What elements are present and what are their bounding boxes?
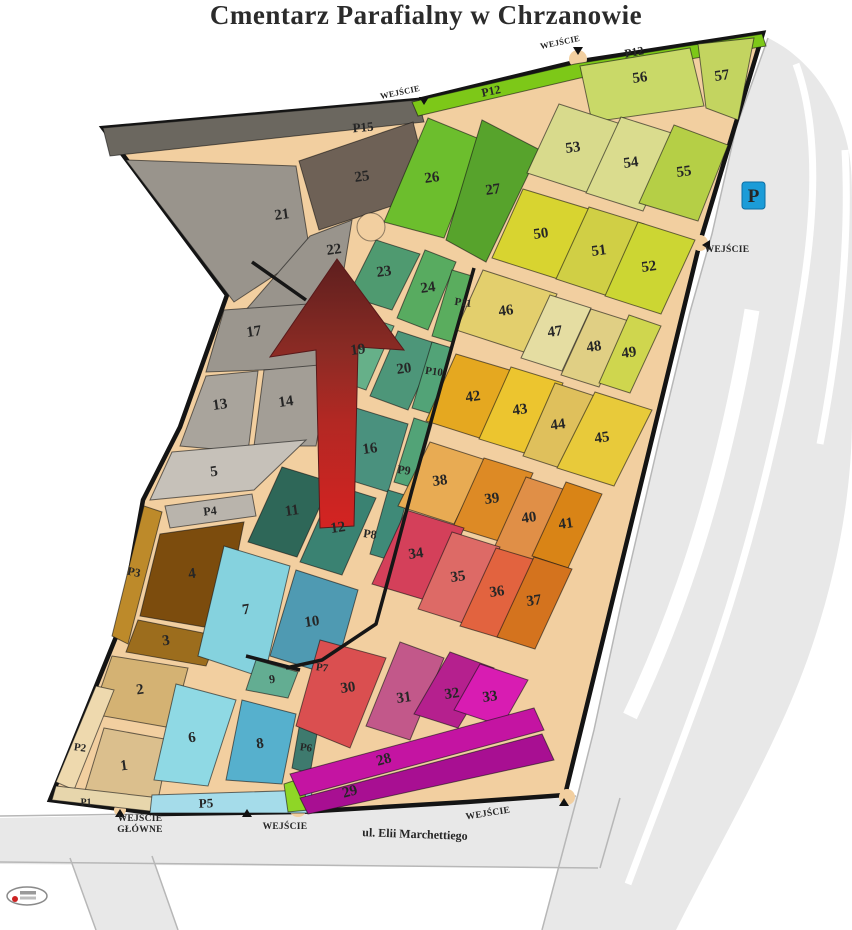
path-label-P5: P5 (199, 795, 214, 811)
section-label-47: 47 (546, 323, 564, 341)
section-label-40: 40 (520, 509, 537, 527)
section-label-38: 38 (431, 472, 448, 490)
road-surface (70, 856, 178, 930)
path-label-P10: P10 (424, 365, 444, 379)
section-label-54: 54 (622, 154, 640, 172)
logo-bar (20, 897, 36, 900)
entrance-label: WEJŚCIEGŁÓWNE (117, 812, 163, 835)
section-label-25: 25 (353, 168, 370, 186)
section-label-36: 36 (488, 583, 506, 601)
section-label-48: 48 (585, 338, 602, 356)
cemetery-map: 2521221713145432171096811121619202324262… (0, 0, 852, 930)
section-label-31: 31 (395, 689, 412, 707)
section-label-32: 32 (443, 685, 460, 703)
section-label-53: 53 (564, 139, 581, 157)
section-label-26: 26 (423, 169, 441, 187)
logo-icon (7, 887, 47, 905)
path-label-P3: P3 (126, 564, 142, 580)
path-label-P8: P8 (362, 526, 377, 542)
path-label-P9: P9 (396, 462, 411, 478)
path-label-P4: P4 (203, 503, 218, 518)
entrance-label: WEJŚCIE (263, 820, 308, 832)
parking-letter: P (748, 186, 760, 207)
path-label-P2: P2 (73, 741, 87, 755)
section-label-41: 41 (557, 515, 574, 533)
section-label-21: 21 (273, 206, 290, 224)
section-label-35: 35 (449, 568, 466, 586)
section-label-14: 14 (277, 393, 295, 411)
section-label-20: 20 (395, 360, 412, 378)
section-label-12: 12 (329, 519, 346, 537)
path-label-P15: P15 (352, 119, 375, 136)
path-label-P7: P7 (315, 661, 329, 675)
central-plaza (357, 213, 385, 241)
section-label-27: 27 (484, 181, 502, 199)
path-label-P11: P11 (454, 296, 473, 310)
page-title: Cmentarz Parafialny w Chrzanowie (0, 0, 852, 31)
section-label-52: 52 (640, 258, 657, 276)
section-label-43: 43 (511, 401, 528, 419)
section-label-42: 42 (464, 388, 481, 406)
section-label-22: 22 (325, 241, 342, 259)
section-label-50: 50 (532, 225, 549, 243)
entrance-label: WEJŚCIE (705, 243, 750, 255)
section-label-37: 37 (525, 592, 543, 610)
section-label-33: 33 (481, 688, 498, 706)
section-label-39: 39 (483, 490, 500, 508)
section-label-51: 51 (590, 242, 607, 260)
logo-bar (20, 891, 36, 895)
path-label-P1: P1 (80, 798, 91, 809)
section-label-30: 30 (339, 679, 356, 697)
section-label-45: 45 (593, 429, 610, 447)
logo-dot (12, 896, 18, 902)
section-label-57: 57 (713, 67, 731, 85)
section-label-17: 17 (245, 323, 263, 341)
section-label-46: 46 (497, 302, 515, 320)
section-label-49: 49 (620, 344, 637, 362)
section-label-16: 16 (361, 440, 379, 458)
section-label-55: 55 (675, 163, 692, 181)
section-label-11: 11 (284, 502, 300, 520)
section-label-24: 24 (419, 279, 437, 297)
section-label-10: 10 (303, 613, 320, 631)
section-label-13: 13 (211, 396, 228, 414)
cemetery-map-page: Cmentarz Parafialny w Chrzanowie 2521221… (0, 0, 852, 930)
section-label-56: 56 (631, 69, 649, 87)
path-label-P6: P6 (299, 741, 313, 755)
section-label-23: 23 (375, 263, 392, 281)
section-label-19: 19 (349, 341, 366, 359)
section-label-34: 34 (407, 545, 425, 563)
section-label-44: 44 (549, 416, 567, 434)
